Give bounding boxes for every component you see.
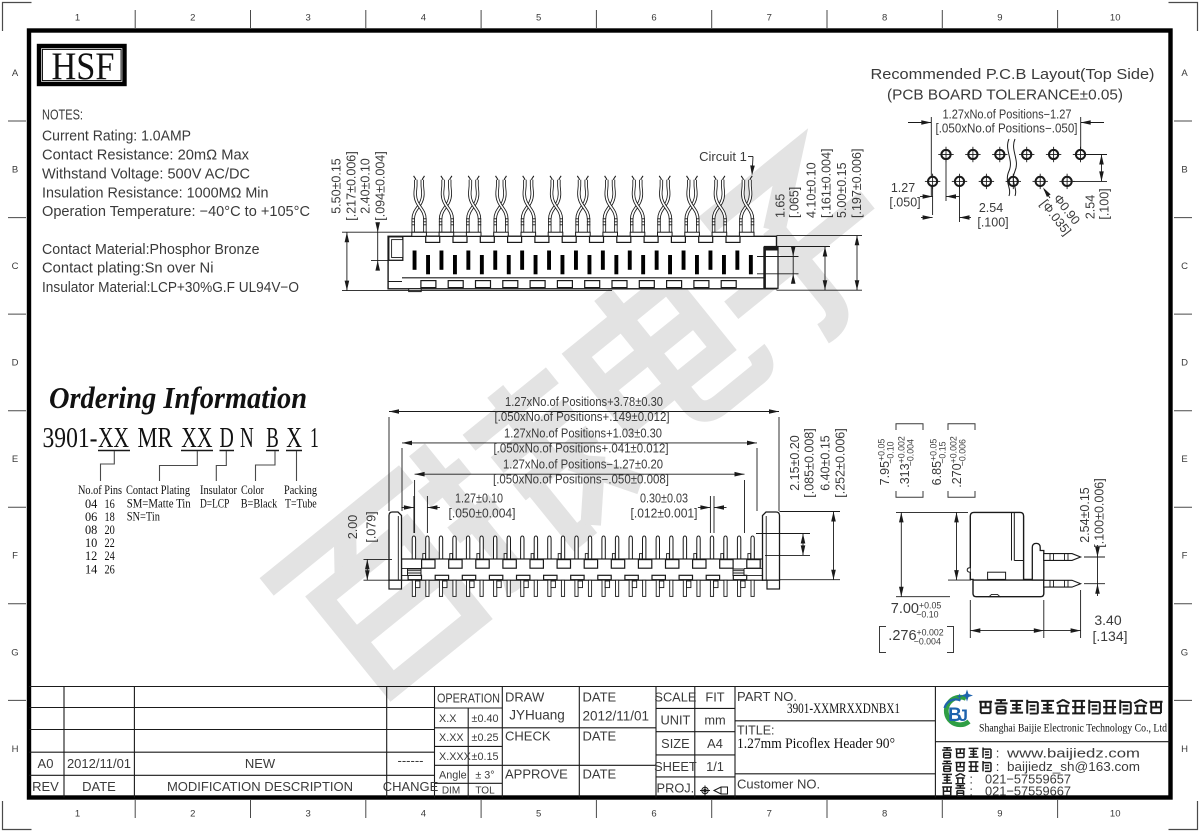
svg-text:2.00: 2.00 — [346, 515, 360, 539]
svg-text:HSF: HSF — [52, 44, 115, 88]
svg-text:8: 8 — [882, 13, 887, 24]
svg-text:H: H — [12, 744, 19, 755]
svg-text:B=Black: B=Black — [241, 497, 278, 511]
svg-text:2.40±0.10: 2.40±0.10 — [359, 158, 373, 214]
svg-text:Contact Plating: Contact Plating — [126, 483, 190, 497]
svg-text:±0.15: ±0.15 — [472, 751, 499, 763]
svg-text:Customer NO.: Customer NO. — [737, 777, 820, 792]
svg-text:X: X — [286, 423, 302, 454]
svg-text:A0: A0 — [38, 756, 54, 771]
svg-text:D=LCP: D=LCP — [200, 497, 229, 511]
svg-text:14: 14 — [85, 561, 98, 576]
svg-text:E: E — [12, 454, 18, 465]
svg-text:NEW: NEW — [245, 756, 276, 771]
svg-text:9: 9 — [997, 809, 1002, 820]
svg-text:7: 7 — [767, 809, 772, 820]
svg-text:[.100]: [.100] — [977, 216, 1008, 230]
svg-text:OPERATION: OPERATION — [437, 691, 500, 706]
svg-text:3901-XXMRXXDNBX1: 3901-XXMRXXDNBX1 — [787, 701, 900, 717]
svg-text:9: 9 — [997, 13, 1002, 24]
svg-text:10: 10 — [1110, 809, 1121, 820]
svg-text:1.27xNo.of Positions+3.78±0.3: 1.27xNo.of Positions+3.78±0.30 — [505, 395, 663, 409]
svg-text:5: 5 — [536, 809, 541, 820]
svg-text:3: 3 — [305, 13, 310, 24]
svg-text:5.50±0.15: 5.50±0.15 — [330, 158, 344, 214]
svg-text:Insulation Resistance: 1000M: Insulation Resistance: 1000MΩ Min — [42, 186, 269, 202]
svg-text:1.65: 1.65 — [774, 194, 788, 218]
svg-text:2.54±0.15: 2.54±0.15 — [1078, 487, 1092, 543]
svg-text:2: 2 — [190, 13, 195, 24]
svg-text:DIM: DIM — [442, 786, 460, 797]
svg-text:mm: mm — [704, 713, 725, 728]
svg-text:A: A — [1181, 68, 1188, 79]
svg-text:2012/11/01: 2012/11/01 — [67, 756, 131, 771]
svg-text:1.27±0.10: 1.27±0.10 — [455, 492, 503, 506]
svg-text:G: G — [1181, 647, 1188, 658]
svg-text:APPROVE: APPROVE — [505, 767, 568, 782]
svg-text:MR: MR — [138, 423, 173, 454]
svg-text:XX: XX — [98, 423, 129, 454]
svg-text:5.00±0.15: 5.00±0.15 — [835, 162, 849, 218]
svg-text:X.XXX: X.XXX — [439, 751, 471, 763]
svg-text:T=Tube: T=Tube — [285, 497, 317, 511]
svg-text:3: 3 — [305, 809, 310, 820]
svg-text:Insulator: Insulator — [200, 483, 238, 497]
svg-text:6: 6 — [651, 809, 656, 820]
svg-text:26: 26 — [105, 561, 116, 576]
svg-text:Contact Resistance: 20mΩ Ma: Contact Resistance: 20mΩ Max — [42, 148, 250, 164]
svg-text:JYHuang: JYHuang — [509, 708, 565, 723]
svg-text:2.54: 2.54 — [1084, 195, 1098, 219]
svg-text:.276+0.002−0.004: .276+0.002−0.004 — [888, 627, 943, 646]
svg-text:DATE: DATE — [583, 690, 617, 705]
svg-text:Recommended P.C.B Layout(Top: Recommended P.C.B Layout(Top Side) — [871, 67, 1155, 83]
svg-text:A: A — [12, 68, 19, 79]
svg-text:1.27mm Picoflex Header 90°: 1.27mm Picoflex Header 90° — [737, 736, 895, 752]
svg-text:1: 1 — [75, 809, 80, 820]
svg-text:J: J — [959, 706, 968, 725]
svg-text:4.10±0.10: 4.10±0.10 — [805, 162, 819, 218]
svg-text:1.27xNo.of Positions+1.03±0.3: 1.27xNo.of Positions+1.03±0.30 — [504, 426, 662, 440]
svg-text:SHEET: SHEET — [654, 759, 697, 774]
svg-text:UNIT: UNIT — [660, 713, 690, 728]
svg-text:Packing: Packing — [284, 483, 317, 497]
svg-text:2: 2 — [190, 809, 195, 820]
svg-text:[.065]: [.065] — [788, 187, 802, 218]
svg-text:10: 10 — [1110, 13, 1121, 24]
svg-text:DATE: DATE — [82, 779, 116, 794]
svg-text:2.15±0.20: 2.15±0.20 — [788, 435, 802, 491]
svg-text:021−57559667: 021−57559667 — [985, 784, 1071, 799]
svg-text:[.100]: [.100] — [1098, 188, 1112, 219]
svg-text:------: ------ — [398, 753, 424, 768]
svg-text:1.27: 1.27 — [891, 181, 915, 195]
svg-text:[.217±0.006]: [.217±0.006] — [345, 151, 359, 220]
svg-text:[.100±0.006]: [.100±0.006] — [1093, 478, 1107, 547]
svg-text:[.197±0.006]: [.197±0.006] — [850, 149, 864, 218]
svg-text:Angle: Angle — [439, 770, 467, 782]
svg-text:[.050±0.004]: [.050±0.004] — [449, 507, 516, 521]
svg-text:[.079]: [.079] — [365, 511, 379, 542]
svg-text:CHECK: CHECK — [505, 729, 551, 744]
svg-text:CHANGE: CHANGE — [383, 779, 439, 794]
svg-text:X.XX: X.XX — [439, 732, 464, 744]
svg-text:0.30±0.03: 0.30±0.03 — [640, 492, 688, 506]
svg-text:3.40: 3.40 — [1094, 612, 1121, 628]
svg-text:Insulator Material:LCP+30%G.F: Insulator Material:LCP+30%G.F UL94V−O — [42, 280, 299, 296]
svg-text:C: C — [12, 261, 19, 272]
svg-text:REV: REV — [32, 779, 59, 794]
svg-text:Color: Color — [241, 483, 265, 497]
svg-text:Contact Material:Phosphor Br: Contact Material:Phosphor Bronze — [42, 242, 260, 258]
svg-text:[.050xNo.of Positions+.041±0.: [.050xNo.of Positions+.041±0.012] — [494, 441, 669, 455]
svg-text:6.40±0.15: 6.40±0.15 — [819, 435, 833, 491]
svg-text:4: 4 — [421, 13, 426, 24]
svg-text:[.085±0.008]: [.085±0.008] — [803, 428, 817, 497]
svg-text:D: D — [12, 358, 19, 369]
svg-text:[.050xNo.of Positions−.050±0.: [.050xNo.of Positions−.050±0.008] — [493, 473, 669, 487]
svg-text:SIZE: SIZE — [661, 736, 689, 751]
svg-text:4: 4 — [421, 809, 426, 820]
svg-text:X.X: X.X — [439, 713, 456, 725]
svg-text:8: 8 — [882, 809, 887, 820]
svg-text:B: B — [12, 165, 18, 176]
svg-text:D: D — [220, 423, 234, 454]
svg-text:[.252±0.006]: [.252±0.006] — [834, 428, 848, 497]
svg-text:[.094±0.004]: [.094±0.004] — [374, 151, 388, 220]
svg-text:NOTES:: NOTES: — [42, 108, 83, 124]
svg-text:DATE: DATE — [583, 729, 617, 744]
svg-text:MODIFICATION DESCRIPTION: MODIFICATION DESCRIPTION — [167, 779, 353, 794]
svg-text:1: 1 — [310, 423, 319, 454]
svg-text:[.050xNo.of Positions+.149±0.: [.050xNo.of Positions+.149±0.012] — [495, 410, 670, 424]
svg-text:[.134]: [.134] — [1092, 628, 1127, 644]
svg-text:[.050xNo.of Positions−.050]: [.050xNo.of Positions−.050] — [936, 122, 1078, 136]
svg-text::: : — [969, 784, 973, 799]
svg-text:Circuit 1: Circuit 1 — [699, 149, 747, 164]
svg-text:TOL: TOL — [475, 786, 495, 797]
svg-text:DATE: DATE — [583, 767, 617, 782]
svg-text:B: B — [1181, 165, 1187, 176]
svg-text:Withstand Voltage: 500V AC/: Withstand Voltage: 500V AC/DC — [42, 167, 250, 183]
svg-text:B: B — [266, 423, 279, 454]
svg-text:PROJ.: PROJ. — [657, 781, 695, 796]
svg-text:D: D — [1181, 358, 1188, 369]
svg-text:SN=Tin: SN=Tin — [127, 510, 161, 524]
svg-text:3901-: 3901- — [43, 423, 98, 454]
svg-text:Ordering Information: Ordering Information — [49, 381, 307, 415]
svg-text:XX: XX — [181, 423, 212, 454]
svg-text:[.012±0.001]: [.012±0.001] — [631, 507, 698, 521]
svg-text:F: F — [12, 551, 18, 562]
svg-text:±0.40: ±0.40 — [472, 713, 499, 725]
svg-text:SM=Matte Tin: SM=Matte Tin — [127, 497, 191, 511]
svg-text:5: 5 — [536, 13, 541, 24]
svg-text:(PCB BOARD TOLERANCE±0.05): (PCB BOARD TOLERANCE±0.05) — [887, 88, 1123, 104]
svg-text:1.27xNo.of Positions−1.27: 1.27xNo.of Positions−1.27 — [943, 108, 1072, 122]
svg-text:Contact plating:Sn over Ni: Contact plating:Sn over Ni — [42, 261, 214, 277]
svg-text:[.161±0.004]: [.161±0.004] — [820, 149, 834, 218]
svg-text:Shanghai Baijie Electronic Tec: Shanghai Baijie Electronic Technology Co… — [979, 723, 1167, 735]
svg-text:1: 1 — [75, 13, 80, 24]
svg-text:Operation Temperature: −40°C: Operation Temperature: −40°C to +105°C — [42, 204, 310, 220]
svg-text:1/1: 1/1 — [706, 759, 724, 774]
svg-text:F: F — [1182, 551, 1188, 562]
svg-text:E: E — [1181, 454, 1187, 465]
svg-text:G: G — [11, 647, 18, 658]
svg-text:SCALE: SCALE — [654, 690, 696, 705]
svg-text:FIT: FIT — [705, 690, 724, 705]
svg-text:±0.25: ±0.25 — [472, 732, 499, 744]
svg-text:2012/11/01: 2012/11/01 — [583, 709, 650, 724]
svg-text:± 3°: ± 3° — [475, 770, 494, 782]
svg-text:[.050]: [.050] — [889, 196, 920, 210]
svg-text:C: C — [1181, 261, 1188, 272]
svg-text:7.00+0.05−0.10: 7.00+0.05−0.10 — [891, 600, 942, 619]
svg-text:Current Rating: 1.0AMP: Current Rating: 1.0AMP — [42, 129, 191, 145]
svg-text:N: N — [240, 423, 254, 454]
svg-text:7: 7 — [767, 13, 772, 24]
svg-text:DRAW: DRAW — [505, 690, 545, 705]
svg-text:1.27xNo.of Positions−1.27±0.2: 1.27xNo.of Positions−1.27±0.20 — [503, 458, 663, 472]
svg-text:6: 6 — [651, 13, 656, 24]
svg-text:H: H — [1181, 744, 1188, 755]
svg-text:A4: A4 — [707, 736, 723, 751]
svg-text:2.54: 2.54 — [979, 201, 1003, 215]
